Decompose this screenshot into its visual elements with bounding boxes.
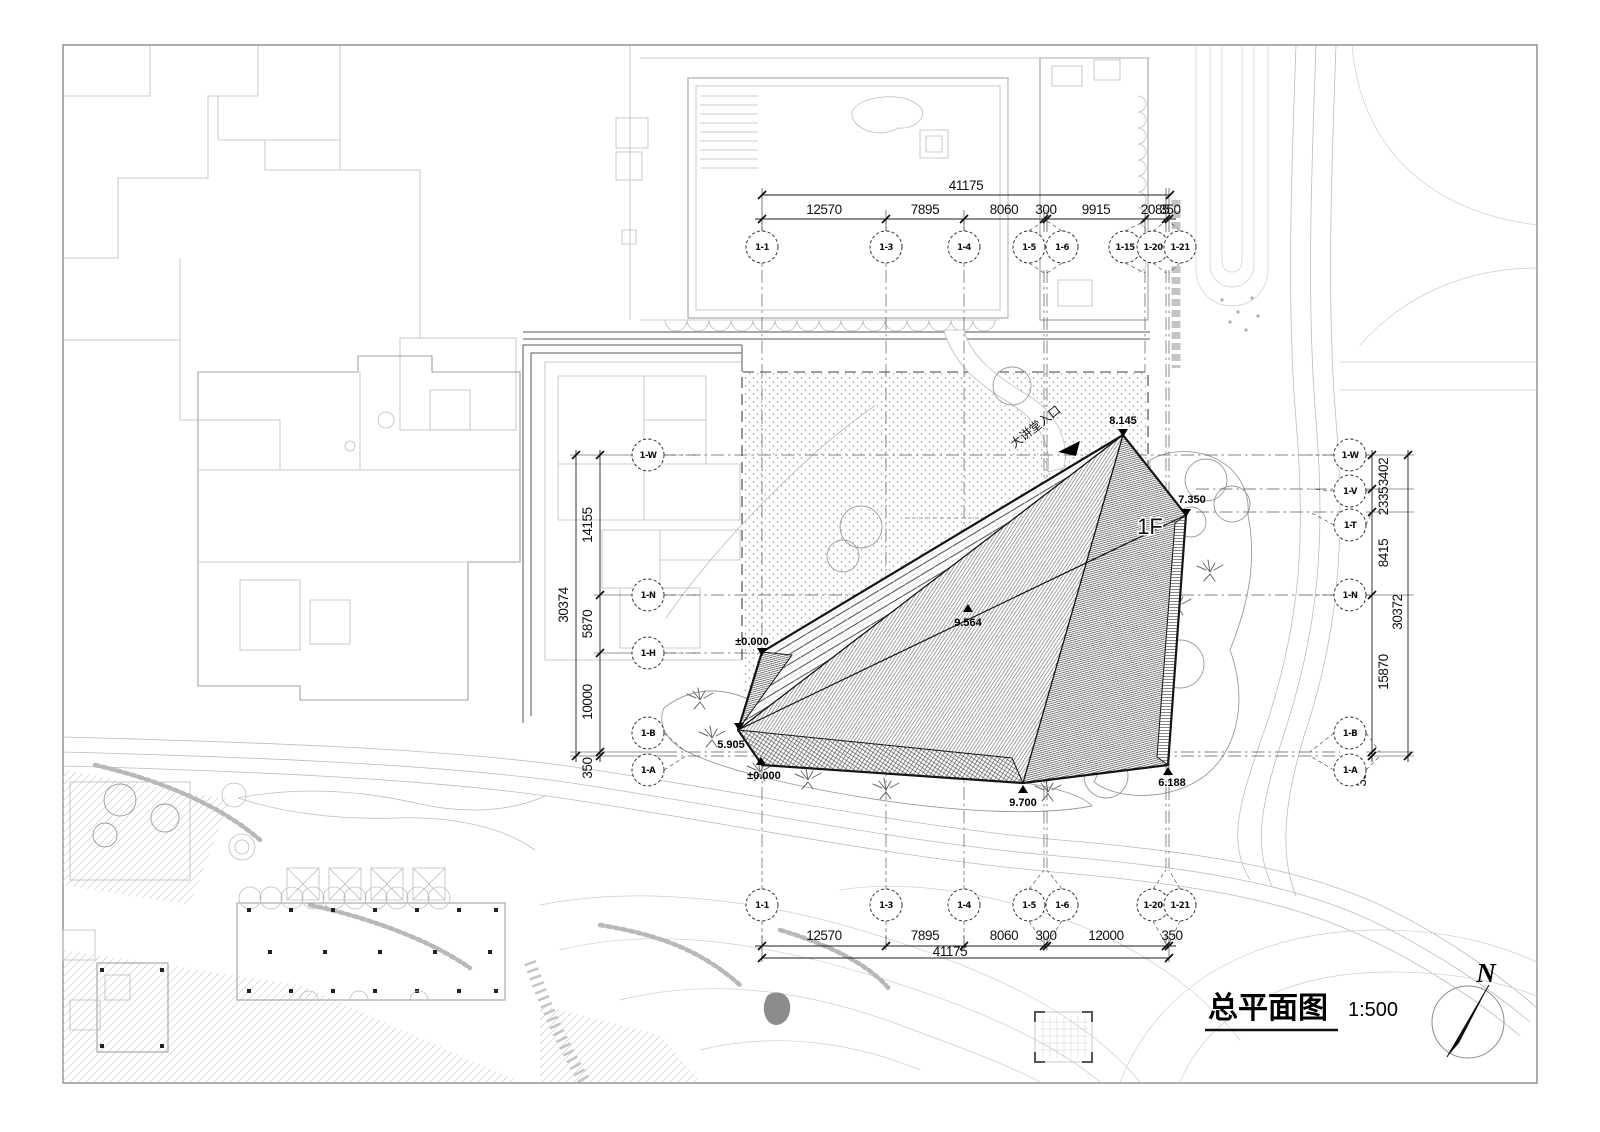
dim-total-right: 30372 bbox=[1390, 594, 1405, 630]
island-dots bbox=[1220, 296, 1259, 331]
spot-elevation: ±0.000 bbox=[747, 770, 781, 782]
grid-bubble-col-left: 1-W 1-N 1-H 1-B 1-A bbox=[632, 439, 664, 786]
dim-seg: 2335 bbox=[1376, 487, 1391, 515]
site-plan-canvas: 1F 41175 12570 7895 8060 300 9915 2085 3… bbox=[0, 0, 1600, 1132]
grid-bubble-label: 1-A bbox=[1343, 766, 1358, 776]
courtyard-room-lines bbox=[545, 362, 742, 660]
grid-bubble-label: 1-4 bbox=[957, 901, 971, 911]
grid-bubble-label: 1-B bbox=[641, 729, 655, 739]
dim-seg: 8415 bbox=[1376, 539, 1391, 567]
grid-bubble: 1-1 bbox=[746, 231, 778, 263]
grid-bubble-label: 1-W bbox=[640, 451, 658, 461]
grid-bubble-label: 1-20 bbox=[1143, 243, 1163, 253]
building-inner-north bbox=[696, 86, 1000, 310]
east-wing-outline bbox=[1040, 58, 1148, 320]
context-courtyard-rooms bbox=[545, 362, 742, 660]
dim-seg: 12570 bbox=[806, 928, 842, 943]
spot-marker bbox=[1163, 767, 1173, 775]
grid-bubble: 1-4 bbox=[948, 231, 980, 263]
grid-bubble: 1-4 bbox=[948, 889, 980, 921]
grid-bubble: 1-1 bbox=[746, 889, 778, 921]
grid-bubble-label: 1-B bbox=[1343, 729, 1357, 739]
road-east-edge1 bbox=[1238, 45, 1301, 880]
drawing-title: 总平面图 bbox=[1208, 992, 1328, 1025]
grid-bubble-label: 1-5 bbox=[1022, 901, 1036, 911]
grid-bubble-label: 1-W bbox=[1342, 451, 1360, 461]
pavilion-corners bbox=[1035, 1012, 1092, 1062]
road-east-edge3 bbox=[1286, 45, 1340, 896]
grid-bubble: 1-3 bbox=[870, 889, 902, 921]
grid-bubble: 1-H bbox=[632, 637, 664, 669]
floor-label: 1F bbox=[1137, 514, 1163, 539]
grid-bubble: 1-5 bbox=[1013, 231, 1045, 263]
spot-elevation: 5.905 bbox=[717, 739, 745, 751]
dim-total-top: 41175 bbox=[949, 178, 984, 193]
grid-bubble-label: 1-3 bbox=[879, 901, 893, 911]
water-hatch3 bbox=[540, 1005, 700, 1082]
building-outline-west bbox=[198, 356, 520, 700]
grid-bubble-label: 1-15 bbox=[1115, 243, 1135, 253]
grid-bubble: 1-6 bbox=[1046, 231, 1078, 263]
spot-elevation: 8.145 bbox=[1109, 415, 1137, 427]
water-hatch1 bbox=[63, 770, 230, 905]
grid-bubble: 1-3 bbox=[870, 231, 902, 263]
dim-seg: 3402 bbox=[1376, 458, 1391, 486]
road-south-edge2 bbox=[63, 752, 1530, 1022]
spot-elevation: ±0.000 bbox=[735, 636, 769, 648]
planting-square bbox=[400, 338, 516, 430]
grid-bubble: 1-N bbox=[632, 579, 664, 611]
site-plan-sheet: 1F 41175 12570 7895 8060 300 9915 2085 3… bbox=[0, 0, 1600, 1132]
context-landscape-bottom bbox=[63, 765, 1537, 1082]
dim-seg: 12000 bbox=[1088, 928, 1124, 943]
contour-lines-se bbox=[1120, 930, 1537, 1082]
grid-bubble: 1-A bbox=[1334, 754, 1366, 786]
spot-marker bbox=[1018, 785, 1028, 793]
pavilion-outline bbox=[1035, 1012, 1092, 1062]
grid-bubble: 1-5 bbox=[1013, 889, 1045, 921]
grid-bubble-label: 1-N bbox=[1342, 591, 1357, 601]
planter-square bbox=[920, 130, 948, 158]
fountain-outer bbox=[229, 834, 255, 860]
grid-bubble-label: 1-6 bbox=[1055, 901, 1069, 911]
grid-bubble: 1-15 bbox=[1109, 231, 1141, 263]
grid-bubble-row-bottom: 1-1 1-3 1-4 1-5 1-6 1-20 1-21 bbox=[746, 889, 1196, 921]
grid-bubble-label: 1-6 bbox=[1055, 243, 1069, 253]
dim-seg: 8060 bbox=[990, 202, 1018, 217]
dim-seg: 5870 bbox=[580, 610, 595, 638]
grid-bubble: 1-N bbox=[1334, 579, 1366, 611]
scalloped-edge bbox=[640, 320, 1000, 331]
road-south-edge1 bbox=[63, 737, 1537, 1008]
dim-top: 41175 12570 7895 8060 300 9915 2085 350 … bbox=[746, 178, 1196, 273]
tree-canopy bbox=[1214, 486, 1250, 522]
dim-seg: 7895 bbox=[911, 202, 939, 217]
spot-elevation: 9.564 bbox=[954, 617, 982, 629]
grid-bubble: 1-A bbox=[632, 754, 664, 786]
water-hatch2 bbox=[63, 950, 520, 1082]
road-east-edge2 bbox=[1261, 45, 1320, 886]
dim-total-bottom: 41175 bbox=[933, 944, 968, 959]
grid-bubble-label: 1-1 bbox=[755, 901, 769, 911]
context-circle bbox=[378, 412, 394, 428]
dim-seg: 8060 bbox=[990, 928, 1018, 943]
north-arrow: N bbox=[1432, 958, 1504, 1058]
pond-curves bbox=[238, 791, 545, 850]
grid-bubble: 1-V bbox=[1334, 475, 1366, 507]
grid-bubble-label: 1-5 bbox=[1022, 243, 1036, 253]
grid-bubble-label: 1-3 bbox=[879, 243, 893, 253]
grid-bubble-label: 1-4 bbox=[957, 243, 971, 253]
context-tower bbox=[616, 45, 648, 320]
dim-seg: 14155 bbox=[580, 507, 595, 543]
dim-seg: 7895 bbox=[911, 928, 939, 943]
spot-elevation: 6.188 bbox=[1158, 777, 1186, 789]
context-circle bbox=[345, 441, 355, 451]
fountain-inner bbox=[235, 840, 249, 854]
grid-bubble-label: 1-H bbox=[640, 649, 655, 659]
north-label: N bbox=[1475, 958, 1497, 988]
pavilion bbox=[1035, 1012, 1092, 1062]
spot-elevation: 9.700 bbox=[1009, 797, 1037, 809]
spot-elevation: 7.350 bbox=[1178, 494, 1206, 506]
grid-bubble: 1-W bbox=[632, 439, 664, 471]
grid-bubble-label: 1-V bbox=[1343, 487, 1358, 497]
dim-right: 3402 2335 8415 15870 350 30372 1-W 1-V 1… bbox=[1310, 439, 1414, 787]
context-lines-nw bbox=[63, 45, 420, 470]
grid-bubble-label: 1-21 bbox=[1170, 243, 1190, 253]
road-top-right bbox=[1340, 45, 1537, 390]
drawing-scale: 1:500 bbox=[1348, 999, 1398, 1021]
grid-bubble: 1-B bbox=[632, 717, 664, 749]
grid-bubble: 1-W bbox=[1334, 439, 1366, 471]
context-building-mid-left bbox=[198, 356, 520, 700]
title-block: 总平面图 1:500 bbox=[1205, 992, 1398, 1030]
dim-seg: 10000 bbox=[580, 684, 595, 720]
context-buildings-top-left bbox=[63, 45, 648, 470]
dim-seg: 350 bbox=[580, 757, 595, 778]
dim-seg: 9915 bbox=[1082, 202, 1110, 217]
dim-seg: 350 bbox=[1159, 202, 1180, 217]
context-building-top-center bbox=[640, 58, 1150, 331]
grid-bubble-label: 1-N bbox=[640, 591, 655, 601]
east-wing-lines bbox=[1008, 60, 1120, 318]
context-circle bbox=[222, 783, 246, 807]
colonnade-circles bbox=[239, 887, 450, 909]
grid-bubble-label: 1-T bbox=[1344, 521, 1357, 531]
dim-seg: 350 bbox=[1161, 928, 1182, 943]
dim-total-left: 30374 bbox=[556, 586, 571, 622]
grid-bubble-col-right: 1-W 1-V 1-T 1-N 1-B 1-A bbox=[1334, 439, 1366, 786]
dim-seg: 15870 bbox=[1376, 654, 1391, 690]
small-pond bbox=[764, 992, 790, 1025]
grid-bubble-label: 1-20 bbox=[1143, 901, 1163, 911]
dim-seg: 12570 bbox=[806, 202, 842, 217]
north-needle-line bbox=[1447, 985, 1489, 1057]
building-rooms-west bbox=[198, 372, 520, 650]
grid-bubble: 1-21 bbox=[1164, 231, 1196, 263]
dim-seg: 300 bbox=[1035, 202, 1056, 217]
pavilion-roof-grid bbox=[1039, 1016, 1089, 1058]
grid-bubble: 1-T bbox=[1334, 509, 1366, 541]
grid-bubble: 1-B bbox=[1334, 717, 1366, 749]
grid-bubble: 1-6 bbox=[1046, 889, 1078, 921]
grid-bubble-label: 1-A bbox=[641, 766, 656, 776]
paving-stripes bbox=[700, 96, 758, 168]
grid-bubble-label: 1-1 bbox=[755, 243, 769, 253]
hairpin-road bbox=[1196, 45, 1268, 306]
grid-bubble-row-top: 1-1 1-3 1-4 1-5 1-6 1-15 1-20 1-21 bbox=[746, 231, 1196, 263]
dim-left: 14155 5870 10000 350 30374 1-W 1-N 1-H 1… bbox=[556, 439, 700, 786]
grid-bubble-label: 1-21 bbox=[1170, 901, 1190, 911]
grid-bubble: 1-21 bbox=[1164, 889, 1196, 921]
pond-blob bbox=[852, 97, 923, 133]
